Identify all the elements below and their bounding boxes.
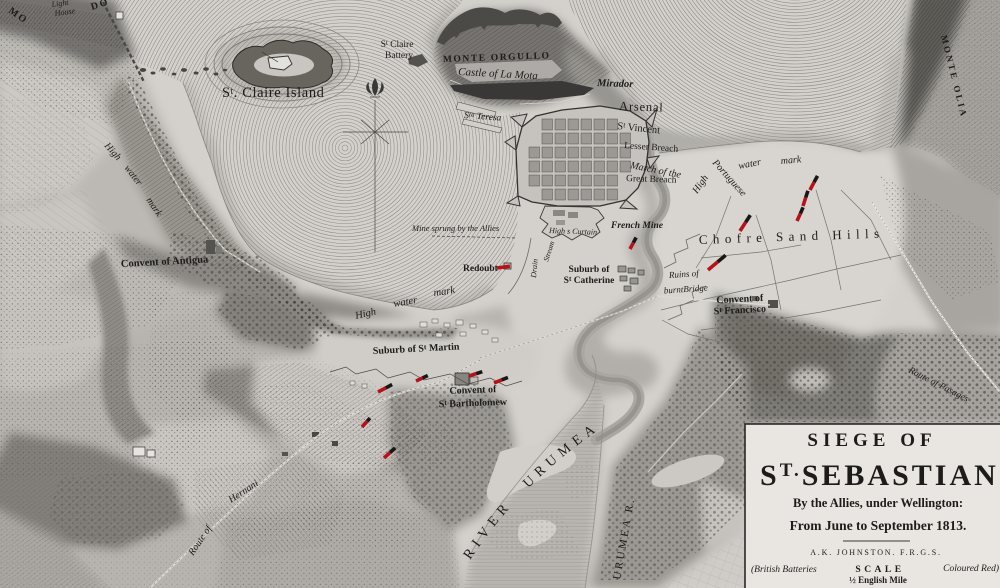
svg-text:Drain: Drain bbox=[529, 258, 540, 279]
svg-text:Convent of: Convent of bbox=[449, 384, 497, 397]
svg-text:Suburb of: Suburb of bbox=[569, 265, 611, 275]
svg-text:Arsenal: Arsenal bbox=[619, 99, 664, 115]
svg-text:Battery: Battery bbox=[385, 51, 413, 61]
svg-text:½ English Mile: ½ English Mile bbox=[849, 575, 907, 585]
svg-text:St Catherine: St Catherine bbox=[564, 275, 615, 286]
svg-text:St. Claire Island: St. Claire Island bbox=[222, 85, 325, 101]
svg-text:SCALE: SCALE bbox=[855, 565, 904, 575]
svg-text:High s Curtain: High s Curtain bbox=[548, 226, 597, 237]
svg-text:By the Allies, under Wellingto: By the Allies, under Wellington: bbox=[793, 496, 963, 510]
svg-text:St Claire: St Claire bbox=[381, 39, 414, 50]
svg-text:SIEGE OF: SIEGE OF bbox=[807, 430, 936, 451]
svg-text:Coloured Red): Coloured Red) bbox=[943, 563, 999, 574]
svg-text:A.K. JOHNSTON. F.R.G.S.: A.K. JOHNSTON. F.R.G.S. bbox=[810, 548, 942, 557]
svg-text:(British Batteries: (British Batteries bbox=[751, 564, 817, 575]
svg-text:St Bartholomew: St Bartholomew bbox=[439, 396, 508, 410]
svg-text:From June to September 1813.: From June to September 1813. bbox=[790, 518, 967, 533]
svg-text:Redoubt: Redoubt bbox=[463, 264, 499, 274]
svg-text:French Mine: French Mine bbox=[610, 221, 664, 231]
svg-text:mark: mark bbox=[780, 154, 802, 167]
svg-text:Mirador: Mirador bbox=[596, 78, 634, 90]
svg-text:Mine sprung by the Allies: Mine sprung by the Allies bbox=[411, 223, 500, 233]
